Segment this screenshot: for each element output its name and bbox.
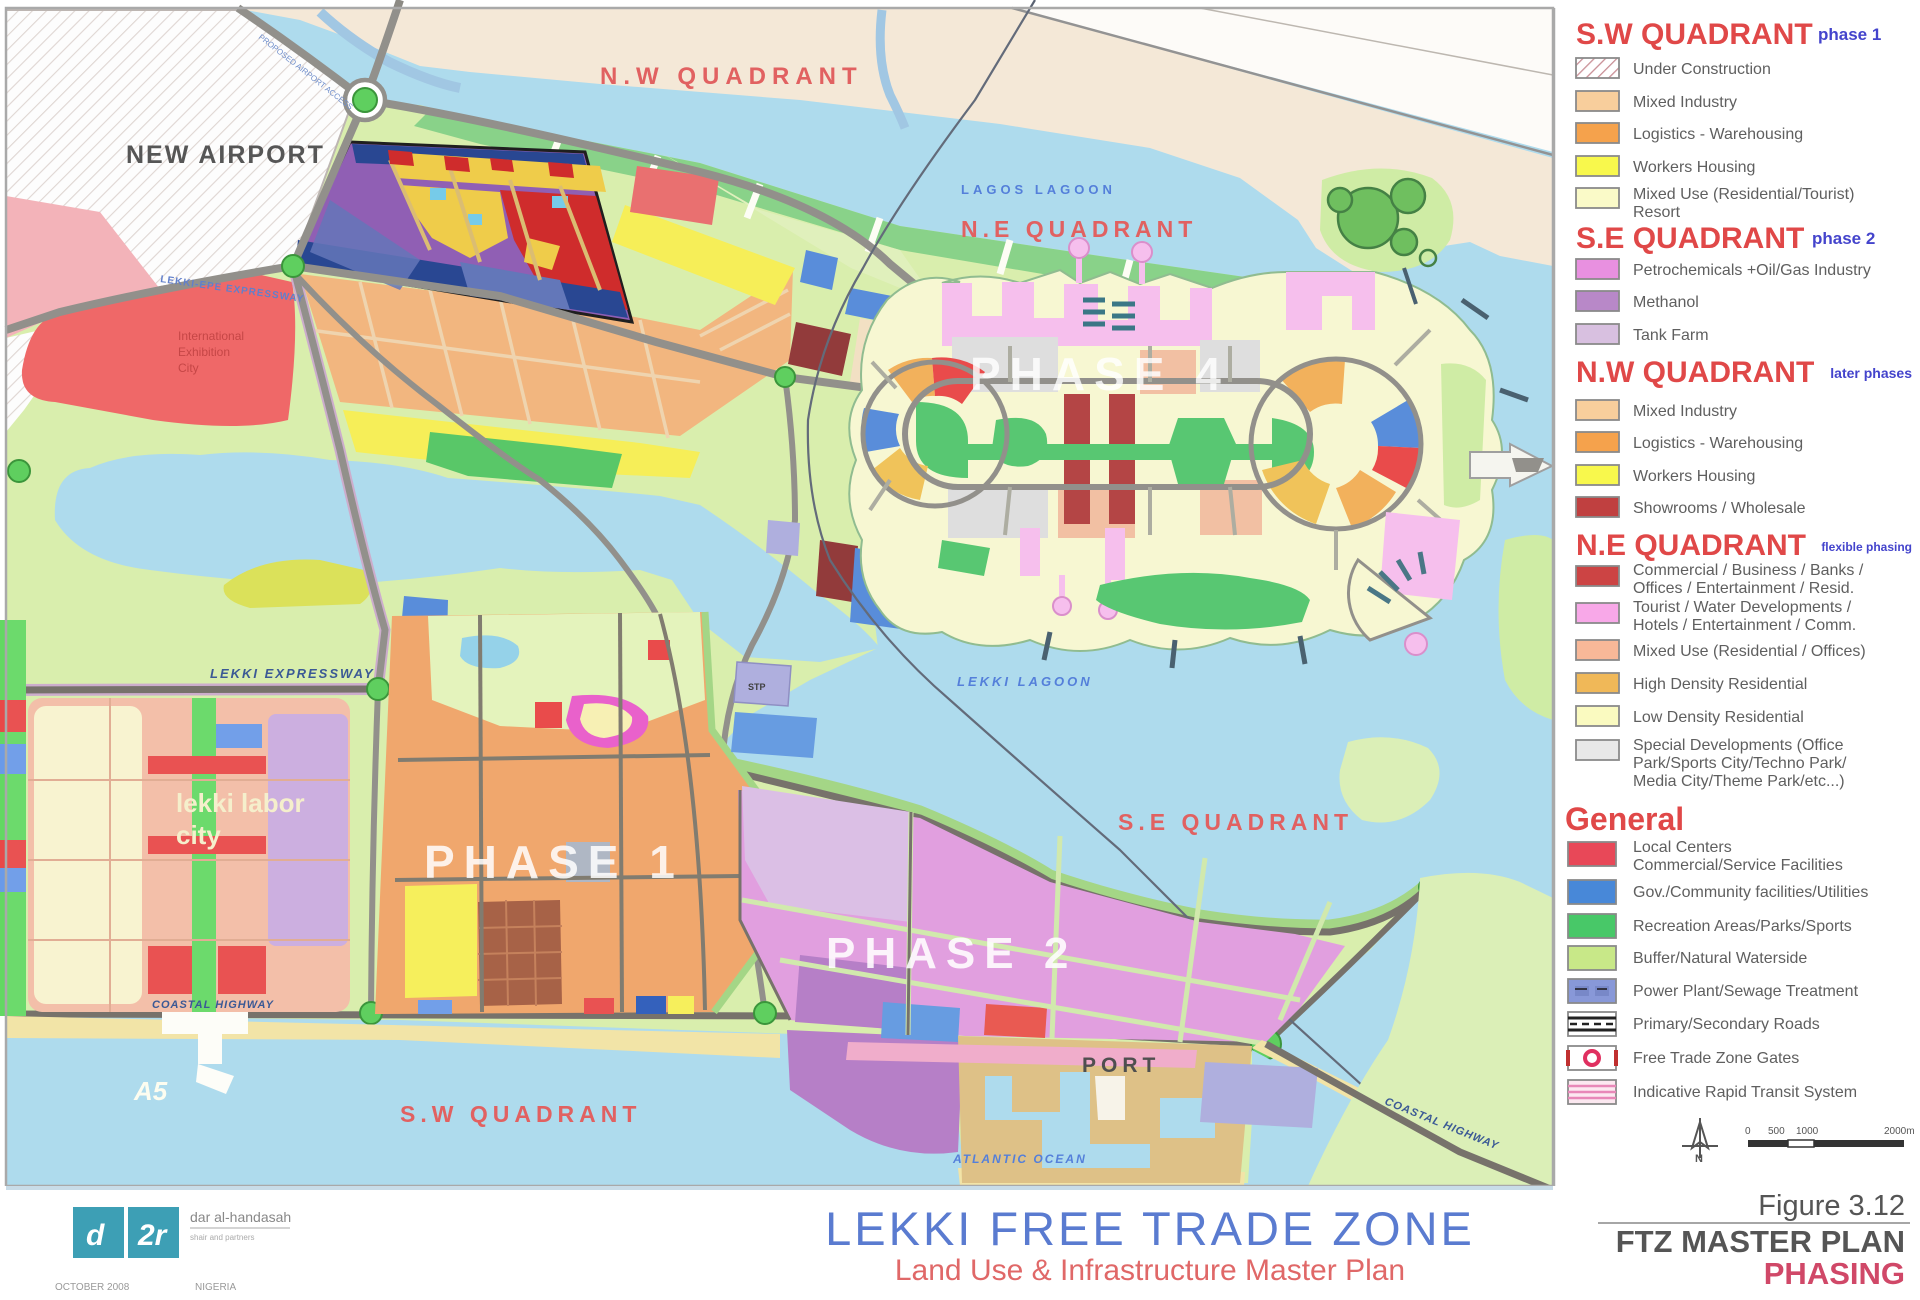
svg-text:S.W QUADRANT: S.W QUADRANT: [1576, 18, 1813, 51]
svg-text:N.W QUADRANT: N.W QUADRANT: [1576, 356, 1814, 389]
svg-text:Mixed Industry: Mixed Industry: [1633, 403, 1737, 420]
svg-text:Power Plant/Sewage Treatment: Power Plant/Sewage Treatment: [1633, 983, 1859, 1000]
svg-text:FTZ MASTER PLAN: FTZ MASTER PLAN: [1616, 1224, 1905, 1259]
svg-text:Mixed Use (Residential / Offic: Mixed Use (Residential / Offices): [1633, 643, 1866, 660]
svg-text:1000: 1000: [1796, 1126, 1819, 1137]
svg-text:Methanol: Methanol: [1633, 294, 1699, 311]
svg-text:OCTOBER 2008: OCTOBER 2008: [55, 1282, 130, 1293]
svg-text:Resort: Resort: [1633, 204, 1681, 221]
svg-text:N.E QUADRANT: N.E QUADRANT: [1576, 529, 1806, 562]
svg-text:High Density Residential: High Density Residential: [1633, 676, 1807, 693]
svg-text:Commercial / Business / Banks: Commercial / Business / Banks /: [1633, 562, 1864, 579]
svg-text:Commercial/Service Facilities: Commercial/Service Facilities: [1633, 857, 1843, 874]
svg-text:Local Centers: Local Centers: [1633, 839, 1732, 856]
svg-text:Logistics - Warehousing: Logistics - Warehousing: [1633, 126, 1803, 143]
svg-text:Figure 3.12: Figure 3.12: [1758, 1190, 1905, 1222]
svg-text:d: d: [86, 1219, 105, 1252]
svg-text:Park/Sports City/Techno Park/: Park/Sports City/Techno Park/: [1633, 755, 1847, 772]
svg-text:dar al-handasah: dar al-handasah: [190, 1209, 291, 1225]
svg-text:Petrochemicals +Oil/Gas Indust: Petrochemicals +Oil/Gas Industry: [1633, 262, 1871, 279]
svg-text:Land Use & Infrastructure Mast: Land Use & Infrastructure Master Plan: [895, 1254, 1405, 1287]
svg-text:Indicative Rapid Transit Syste: Indicative Rapid Transit System: [1633, 1084, 1857, 1101]
svg-text:Special Developments (Office: Special Developments (Office: [1633, 737, 1844, 754]
svg-text:shair and partners: shair and partners: [190, 1233, 254, 1242]
svg-text:Logistics - Warehousing: Logistics - Warehousing: [1633, 435, 1803, 452]
svg-text:500: 500: [1768, 1126, 1785, 1137]
svg-text:S.E QUADRANT: S.E QUADRANT: [1576, 222, 1804, 255]
svg-text:N: N: [1695, 1153, 1703, 1165]
svg-text:Showrooms / Wholesale: Showrooms / Wholesale: [1633, 500, 1806, 517]
svg-text:phase 2: phase 2: [1812, 229, 1875, 248]
svg-text:NIGERIA: NIGERIA: [195, 1282, 236, 1293]
svg-text:Primary/Secondary Roads: Primary/Secondary Roads: [1633, 1016, 1820, 1033]
svg-text:General: General: [1565, 801, 1684, 837]
svg-text:Media City/Theme Park/etc...): Media City/Theme Park/etc...): [1633, 773, 1845, 790]
svg-text:PHASING: PHASING: [1764, 1256, 1905, 1291]
svg-text:later phases: later phases: [1830, 365, 1912, 381]
svg-text:Under Construction: Under Construction: [1633, 61, 1771, 78]
svg-text:2000m: 2000m: [1884, 1126, 1915, 1137]
svg-text:Workers Housing: Workers Housing: [1633, 468, 1755, 485]
svg-text:Free Trade Zone Gates: Free Trade Zone Gates: [1633, 1050, 1799, 1067]
svg-text:Tourist / Water Developments /: Tourist / Water Developments /: [1633, 599, 1852, 616]
svg-text:flexible phasing: flexible phasing: [1821, 540, 1912, 554]
svg-text:Offices / Entertainment / Resi: Offices / Entertainment / Resid.: [1633, 580, 1854, 597]
svg-text:2r: 2r: [137, 1219, 169, 1252]
svg-text:Tank Farm: Tank Farm: [1633, 327, 1709, 344]
svg-text:phase 1: phase 1: [1818, 25, 1881, 44]
svg-text:Low Density Residential: Low Density Residential: [1633, 709, 1804, 726]
svg-text:Mixed Use (Residential/Tourist: Mixed Use (Residential/Tourist): [1633, 186, 1854, 203]
svg-text:Mixed Industry: Mixed Industry: [1633, 94, 1737, 111]
svg-text:0: 0: [1745, 1126, 1751, 1137]
svg-text:Recreation Areas/Parks/Sports: Recreation Areas/Parks/Sports: [1633, 918, 1852, 935]
svg-text:Hotels / Entertainment / Comm.: Hotels / Entertainment / Comm.: [1633, 617, 1856, 634]
svg-text:Buffer/Natural Waterside: Buffer/Natural Waterside: [1633, 950, 1807, 967]
svg-text:Gov./Community facilities/Util: Gov./Community facilities/Utilities: [1633, 884, 1868, 901]
svg-text:Workers Housing: Workers Housing: [1633, 159, 1755, 176]
svg-text:LEKKI FREE TRADE ZONE: LEKKI FREE TRADE ZONE: [825, 1202, 1475, 1255]
